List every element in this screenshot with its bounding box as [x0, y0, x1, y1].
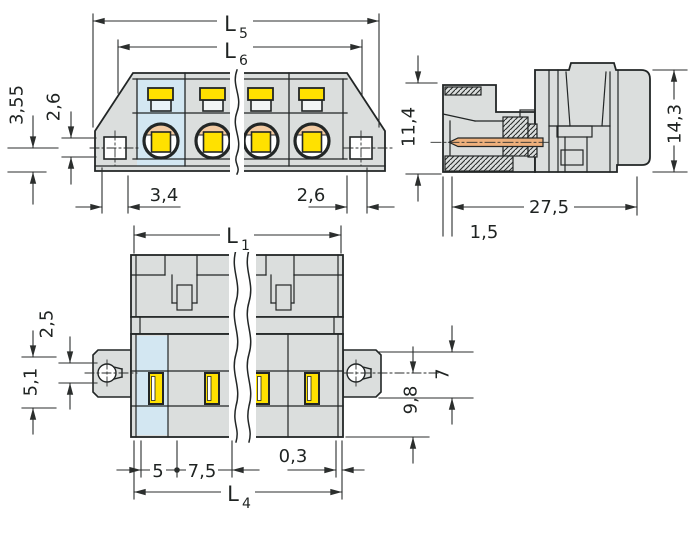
- dim-label-27-5: 27,5: [529, 197, 569, 218]
- dim-label-L5: L: [224, 12, 236, 36]
- dim-label-L1: L: [226, 224, 238, 248]
- dim-label-7-5: 7,5: [188, 461, 217, 482]
- front-view: L 5 L 6 3,55 2,6 3,4 2,6: [7, 9, 395, 213]
- break-line-bottom: [229, 249, 256, 443]
- dim-label-2-5: 2,5: [37, 310, 58, 339]
- bottom-view: L 1 5 7,5 0,3 L 4 2,5 5,1 7 9,8: [21, 223, 474, 512]
- dim-label-7: 7: [433, 368, 454, 379]
- pin-slot: [255, 373, 269, 404]
- dimension-origin-dot: [174, 467, 180, 473]
- dim-label-11-4: 11,4: [399, 107, 420, 147]
- pin-slot: [149, 373, 163, 404]
- actuation-slot: [148, 88, 173, 100]
- pin-slot: [205, 373, 219, 404]
- dim-label-0-3: 0,3: [279, 446, 308, 467]
- dim-label-5: 5: [152, 461, 163, 482]
- clamp-window: [203, 100, 223, 111]
- dim-label-L4-sub: 4: [242, 496, 251, 512]
- side-view: 27,5 1,5 11,4 14,3: [399, 56, 688, 243]
- dim-label-3-55: 3,55: [7, 85, 28, 125]
- contact-pad: [204, 132, 223, 152]
- flange-keyhole-right: [344, 360, 441, 386]
- dim-label-2-6-left: 2,6: [44, 93, 65, 122]
- dim-label-L5-sub: 5: [239, 26, 248, 42]
- clamp-window: [151, 100, 171, 111]
- dim-label-1-5: 1,5: [470, 222, 499, 243]
- dim-label-L4: L: [227, 482, 239, 506]
- dim-label-L1-sub: 1: [241, 238, 250, 254]
- dim-label-14-3: 14,3: [665, 104, 686, 144]
- actuation-slot: [248, 88, 273, 100]
- clamp-window: [251, 100, 271, 111]
- pin-slot: [305, 373, 319, 404]
- dim-label-3-4: 3,4: [150, 185, 179, 206]
- actuation-slot: [200, 88, 225, 100]
- connector-drawing: L 5 L 6 3,55 2,6 3,4 2,6: [0, 0, 697, 543]
- break-line-front: [230, 69, 244, 175]
- contact-pad: [303, 132, 322, 152]
- technical-drawing-canvas: L 5 L 6 3,55 2,6 3,4 2,6: [0, 0, 697, 543]
- dim-label-L6: L: [224, 39, 236, 63]
- dim-label-L6-sub: 6: [239, 53, 248, 69]
- dim-label-9-8: 9,8: [401, 386, 422, 415]
- dim-label-5-1: 5,1: [21, 368, 42, 397]
- actuation-slot: [299, 88, 324, 100]
- side-rear-body: [535, 63, 650, 172]
- dim-label-2-6-right: 2,6: [297, 185, 326, 206]
- contact-pad: [252, 132, 271, 152]
- clamp-window: [302, 100, 322, 111]
- contact-pad: [152, 132, 171, 152]
